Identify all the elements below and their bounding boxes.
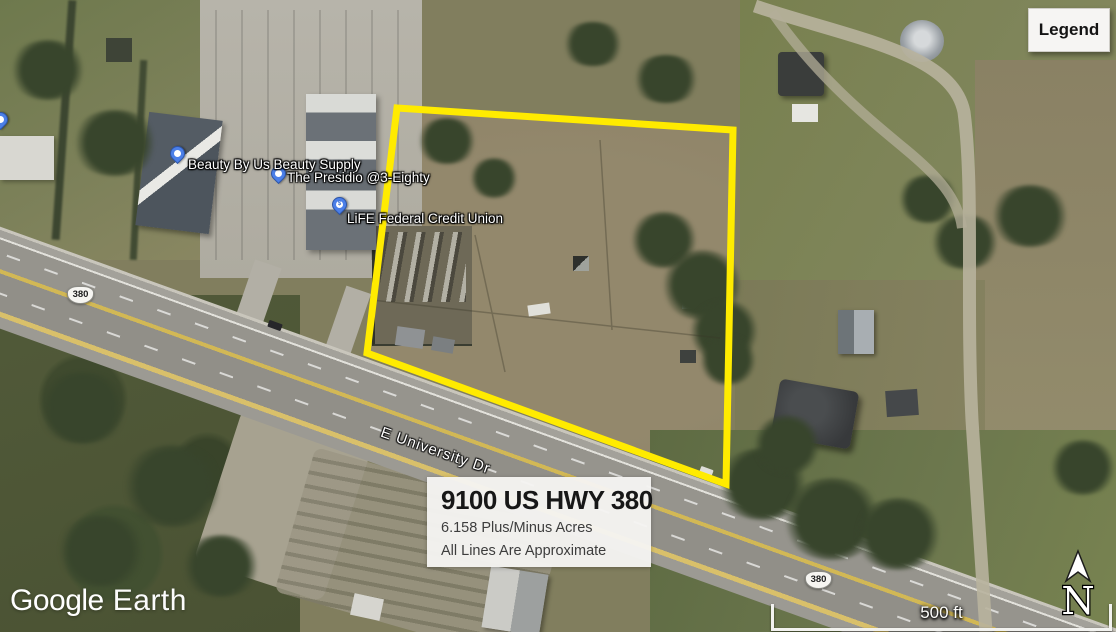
tree-cluster <box>415 118 479 164</box>
property-info-card: 9100 US HWY 380 6.158 Plus/Minus Acres A… <box>427 477 651 567</box>
tree-cluster <box>698 335 758 385</box>
poi-label-presidio[interactable]: The Presidio @3-Eighty <box>287 170 430 185</box>
building-white-shed <box>792 104 818 122</box>
parked-vehicles-rows <box>380 232 466 302</box>
property-title: 9100 US HWY 380 <box>441 485 639 516</box>
building-house-top-right <box>778 52 824 96</box>
building-shed-in-parcel-south <box>680 350 696 363</box>
property-disclaimer: All Lines Are Approximate <box>441 542 639 562</box>
tree-cluster <box>180 535 262 597</box>
legend-button[interactable]: Legend <box>1028 8 1110 52</box>
dollar-pin-glyph: $ <box>336 201 343 208</box>
building-shed-right <box>885 389 919 417</box>
building-shed-top-left <box>106 38 132 62</box>
pin-dot <box>174 150 181 157</box>
tree-cluster <box>120 445 225 527</box>
tree-cluster <box>560 22 626 66</box>
building-metal-warehouse <box>482 566 549 632</box>
logo-earth: Earth <box>113 584 187 617</box>
tree-cluster <box>852 498 944 570</box>
terrain-right-farm-field <box>975 60 1116 460</box>
scale-line <box>771 628 1112 631</box>
google-earth-watermark: GoogleEarth <box>10 584 187 618</box>
north-arrow: N <box>1055 548 1101 620</box>
tree-cluster <box>70 110 160 176</box>
building-white-house-left <box>0 136 54 180</box>
tree-cluster <box>468 158 520 198</box>
tree-cluster <box>988 185 1072 247</box>
building-house-sw-parcel <box>395 326 425 349</box>
tree-cluster <box>8 40 88 100</box>
building-shed-in-parcel <box>573 256 589 271</box>
tree-cluster <box>55 515 147 587</box>
tree-cluster <box>896 175 960 223</box>
north-arrow-icon <box>1066 551 1090 581</box>
pin-dot <box>0 116 4 123</box>
legend-button-label: Legend <box>1039 20 1099 40</box>
property-acreage: 6.158 Plus/Minus Acres <box>441 519 639 539</box>
building-small-white-bottom <box>350 593 384 621</box>
tree-cluster <box>630 55 702 103</box>
tree-cluster <box>35 372 130 444</box>
poi-label-credit-union[interactable]: LiFE Federal Credit Union <box>347 211 503 226</box>
building-gray-barn <box>838 310 874 354</box>
google-earth-map-view[interactable]: $ Beauty By Us Beauty Supply The Presidi… <box>0 0 1116 632</box>
building-round-gazebo <box>900 20 944 62</box>
logo-google: Google <box>10 584 104 617</box>
north-letter: N <box>1061 579 1094 620</box>
tree-cluster <box>752 415 822 475</box>
tree-cluster <box>1048 440 1116 495</box>
